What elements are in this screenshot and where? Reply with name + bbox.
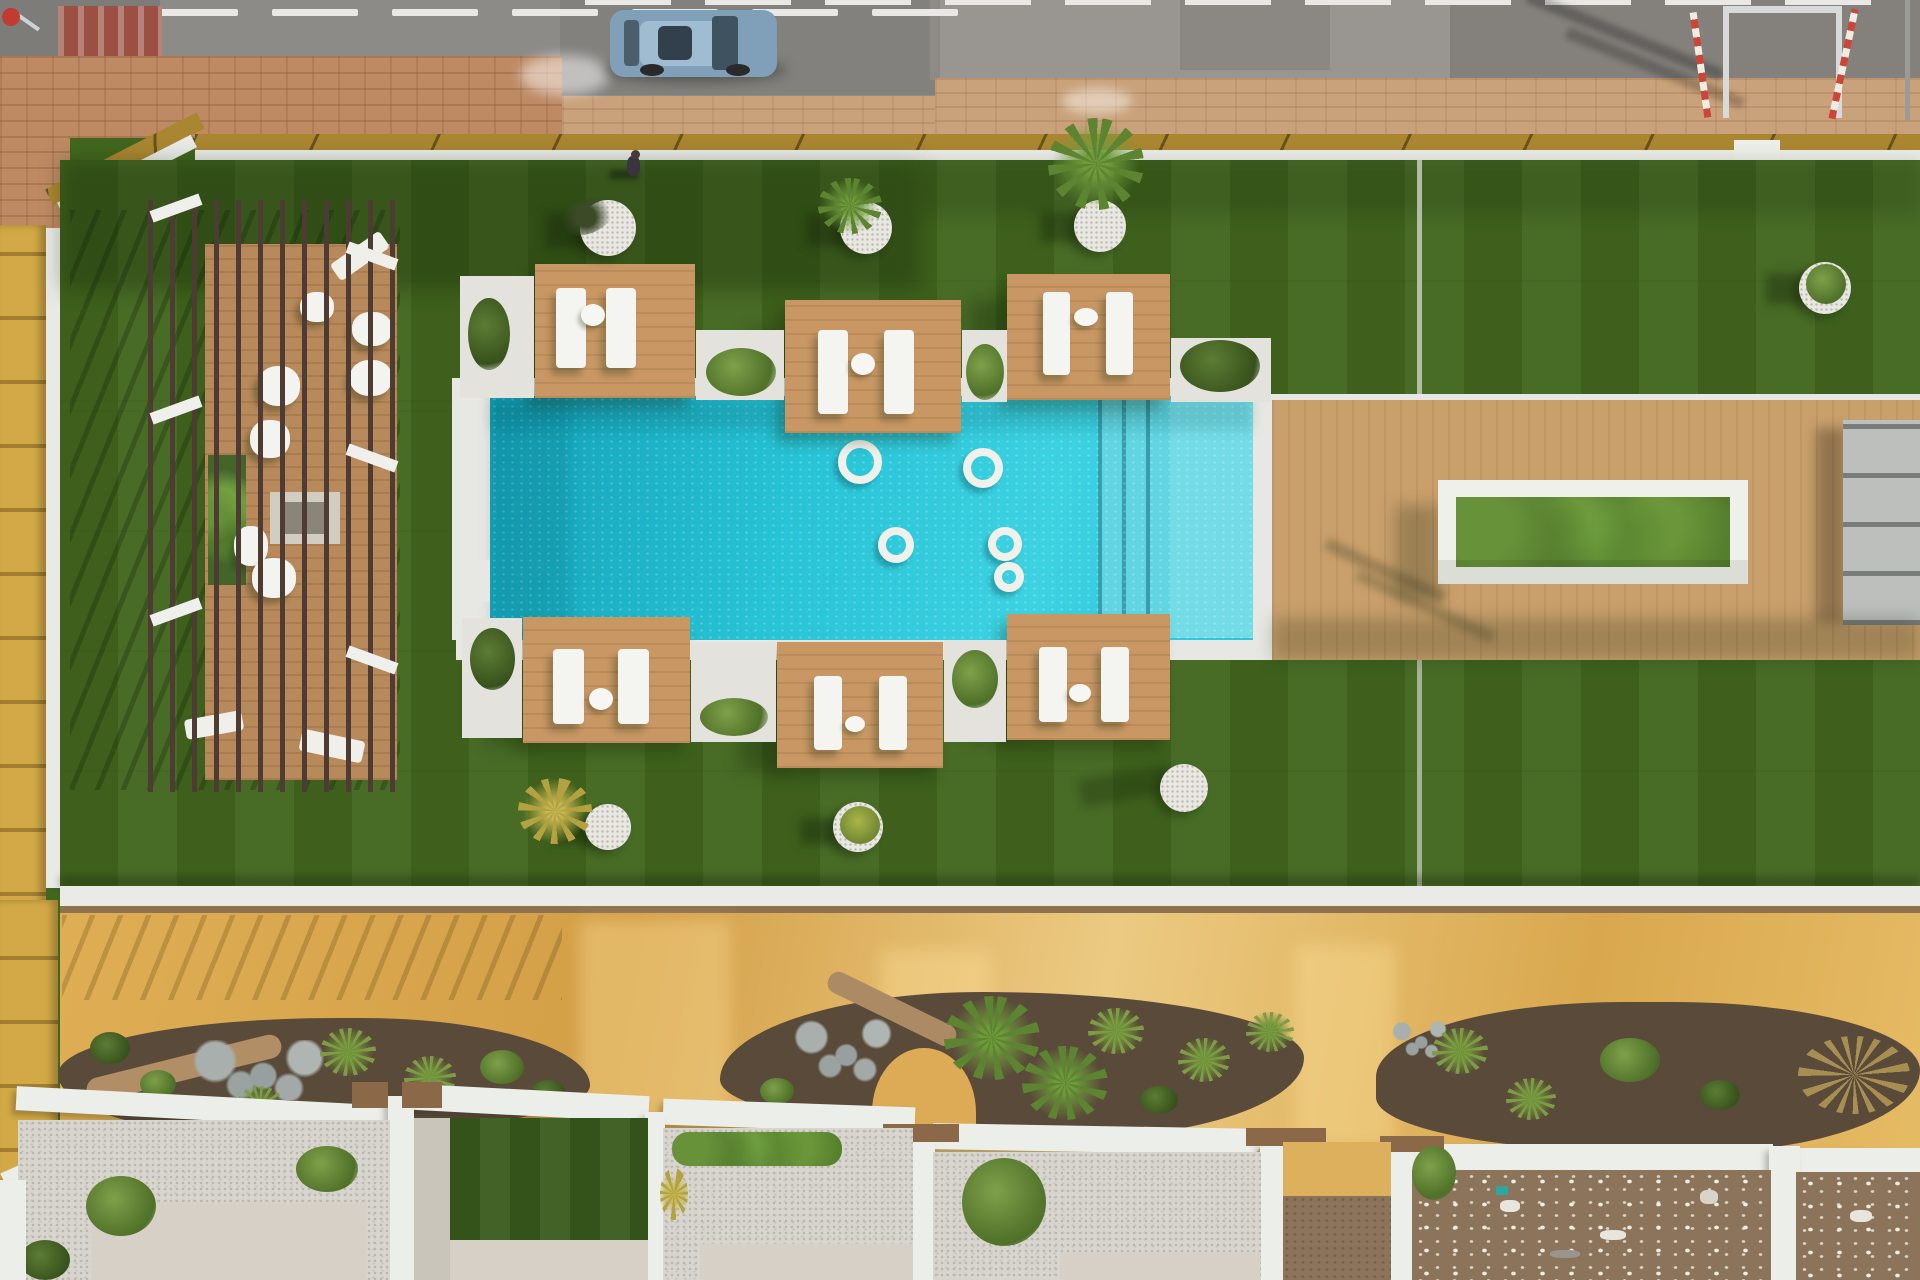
- sidewalk: [562, 96, 935, 138]
- paint-splotch: [1062, 88, 1132, 114]
- shrub-row: [672, 1132, 842, 1166]
- lane-marking: [512, 9, 598, 16]
- paver-path: [414, 1118, 450, 1280]
- terrace-light: [580, 920, 730, 1120]
- construction-debris: [1850, 1210, 1872, 1222]
- sun-lounger: [884, 330, 914, 414]
- person: [627, 156, 640, 176]
- shrub: [470, 628, 515, 690]
- deck-platform: [1007, 274, 1170, 400]
- sun-lounger: [618, 649, 649, 724]
- agave-plant: [1178, 1038, 1230, 1082]
- person-head: [631, 150, 640, 159]
- side-table: [851, 353, 875, 375]
- lane-marking: [1665, 0, 1751, 5]
- shrub: [1140, 1086, 1178, 1114]
- sun-lounger: [1101, 647, 1129, 722]
- patio-wall: [1412, 1144, 1773, 1170]
- shrub: [952, 650, 998, 708]
- pool-float-ring: [988, 527, 1022, 561]
- pool-float-ring: [994, 562, 1024, 592]
- construction-debris: [1500, 1200, 1520, 1212]
- shrub: [966, 344, 1004, 400]
- patio-wall: [388, 1096, 414, 1280]
- dirt-patio: [1412, 1170, 1771, 1280]
- shrub: [1180, 340, 1260, 392]
- sun-lounger: [553, 649, 584, 724]
- car-wheel: [640, 64, 664, 76]
- sun-lounger: [818, 330, 848, 414]
- sun-lounger: [1106, 292, 1133, 375]
- palm-tree: [1022, 1046, 1108, 1120]
- shrub: [840, 806, 880, 844]
- concrete-slab: [700, 1244, 913, 1280]
- patio-wall: [911, 1136, 935, 1280]
- lane-marking: [392, 9, 478, 16]
- water-shade: [490, 396, 570, 640]
- teal-marker: [1496, 1186, 1508, 1195]
- terrace-wall-cap: [60, 906, 1920, 913]
- building-shadow: [1180, 0, 1330, 70]
- sun-lounger: [1043, 292, 1070, 375]
- terrace-light: [1295, 945, 1395, 1145]
- terrace-wall: [60, 886, 1920, 908]
- sun-lounger: [879, 676, 907, 750]
- shelf-unit: [1843, 420, 1920, 625]
- palm-tree: [518, 778, 592, 844]
- crosswalk-patch: [58, 6, 162, 56]
- turf-seam: [1417, 660, 1422, 890]
- shrub: [1412, 1146, 1456, 1200]
- side-table: [1069, 684, 1091, 702]
- construction-debris: [1600, 1230, 1626, 1240]
- wood-cap: [352, 1082, 388, 1108]
- shrub: [760, 1078, 794, 1104]
- car-wheel: [726, 64, 750, 76]
- car-sunroof: [658, 26, 692, 60]
- lane-marking: [872, 9, 958, 16]
- shrub: [86, 1176, 156, 1236]
- lane-marking: [272, 9, 358, 16]
- dry-grass: [1798, 1036, 1910, 1114]
- fence-post: [1905, 0, 1910, 120]
- deck-platform: [523, 617, 690, 743]
- shrub: [468, 298, 510, 370]
- patio-wall: [1260, 1142, 1285, 1280]
- patio-wall: [0, 1180, 26, 1280]
- sun-lounger: [1039, 647, 1067, 722]
- aerial-photo-resort-pool: [0, 0, 1920, 1280]
- shrub: [1600, 1038, 1660, 1082]
- wood-cap: [402, 1082, 442, 1108]
- terrace-shadow: [62, 915, 562, 1000]
- shrub: [296, 1146, 358, 1192]
- agave-plant: [1506, 1078, 1556, 1120]
- shrub: [20, 1240, 70, 1280]
- shrub: [1806, 264, 1846, 304]
- lane-marking: [945, 0, 1031, 5]
- deck-platform: [1007, 614, 1170, 740]
- lane-marking: [152, 9, 238, 16]
- pool-step-block: [456, 560, 490, 602]
- succulent-cluster: [786, 1012, 902, 1084]
- palm-tree: [818, 178, 882, 234]
- deck-band-shadow: [1272, 618, 1920, 660]
- concrete-slab: [1060, 1252, 1260, 1280]
- patio-wall: [1389, 1142, 1414, 1280]
- sun-lounger: [606, 288, 636, 368]
- pergola-slats: [148, 200, 400, 792]
- red-sign: [2, 8, 20, 26]
- lane-marking: [1425, 0, 1511, 5]
- goal-post: [1723, 6, 1729, 118]
- pool-float-ring: [878, 527, 914, 563]
- dirt-patio: [1283, 1196, 1391, 1280]
- agave-plant: [1246, 1012, 1294, 1052]
- palm-tree: [1048, 118, 1144, 210]
- agave-plant: [320, 1028, 376, 1076]
- lane-marking: [1785, 0, 1871, 5]
- pool-float-ring: [838, 440, 882, 484]
- shrub: [706, 348, 776, 396]
- dirt-patio: [1796, 1172, 1920, 1280]
- sidewalk: [0, 56, 562, 138]
- agave-plant: [1088, 1008, 1144, 1054]
- deck-band-edge: [1272, 394, 1920, 400]
- lane-marking: [1065, 0, 1151, 5]
- paint-splotch: [520, 55, 610, 95]
- concrete-slab: [450, 1240, 648, 1280]
- side-table: [845, 716, 865, 732]
- lane-marking: [1305, 0, 1391, 5]
- shrub: [480, 1050, 524, 1084]
- construction-debris: [1550, 1250, 1580, 1258]
- lane-marking: [585, 0, 671, 5]
- lane-marking: [705, 0, 791, 5]
- shrub: [962, 1158, 1046, 1246]
- side-table: [589, 688, 613, 710]
- planter-shade: [1438, 560, 1748, 584]
- sun-lounger: [556, 288, 586, 368]
- deck-platform: [777, 642, 943, 768]
- lane-marking: [1185, 0, 1271, 5]
- car-rear-window: [624, 20, 639, 66]
- turf-patch: [450, 1118, 648, 1240]
- agave-plant: [1432, 1028, 1488, 1074]
- sun-lounger: [814, 676, 842, 750]
- side-table: [581, 304, 605, 326]
- side-table: [1074, 308, 1098, 326]
- shrub: [1700, 1080, 1740, 1110]
- planter-plants: [1456, 497, 1730, 567]
- shelf-shadow: [1816, 428, 1846, 623]
- pool-float-ring: [963, 448, 1003, 488]
- car-windshield: [712, 16, 738, 70]
- construction-debris: [1700, 1190, 1718, 1204]
- goal-crossbar: [1723, 6, 1842, 13]
- plant: [660, 1168, 688, 1220]
- planter-circle: [1160, 764, 1208, 812]
- shrub: [90, 1032, 130, 1064]
- patio-wall: [1798, 1148, 1920, 1174]
- turf-seam: [1417, 160, 1422, 402]
- lane-marking: [825, 0, 911, 5]
- shrub: [700, 698, 768, 736]
